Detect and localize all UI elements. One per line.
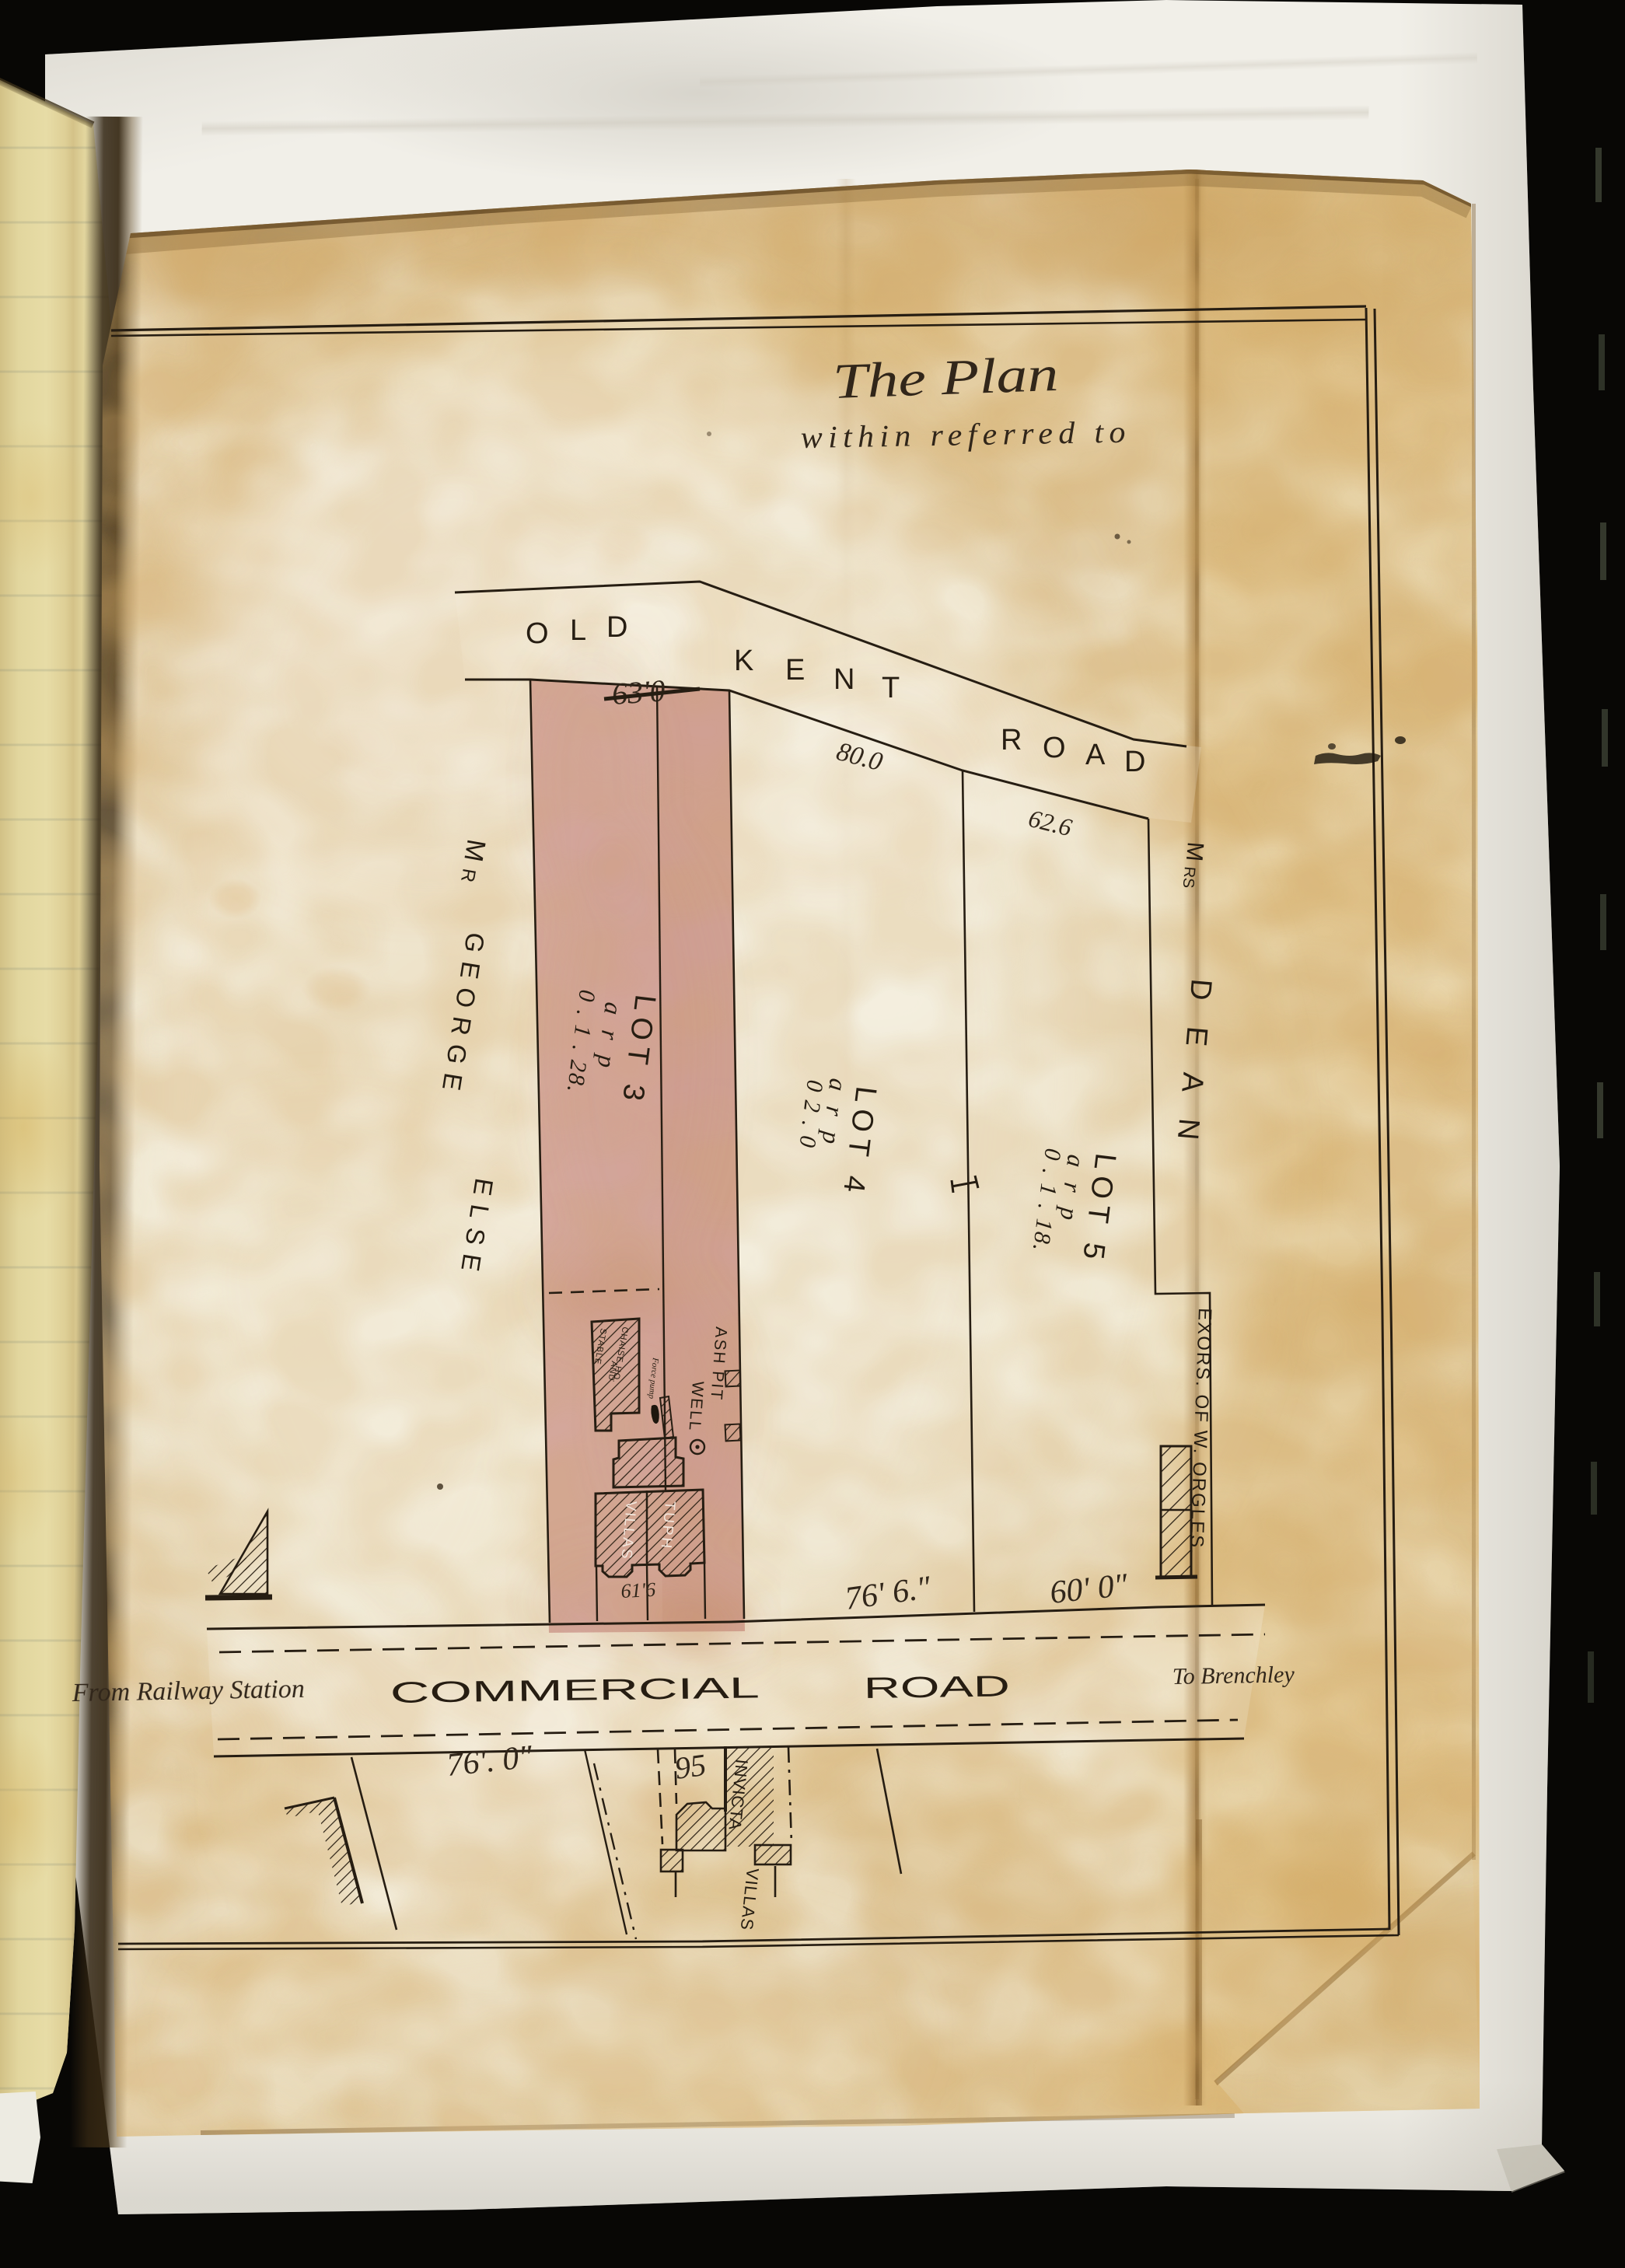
svg-text:A: A (1085, 739, 1106, 771)
svg-text:D: D (606, 611, 627, 644)
svg-text:K: K (734, 645, 753, 677)
svg-text:M: M (1181, 840, 1208, 862)
svg-text:COMMERCIAL: COMMERCIAL (390, 1672, 760, 1710)
svg-text:O: O (526, 617, 549, 650)
svg-text:The Plan: The Plan (832, 346, 1059, 409)
svg-text:R: R (1001, 724, 1022, 757)
svg-text:WELL: WELL (685, 1381, 706, 1433)
svg-text:within referred to: within referred to (800, 414, 1131, 455)
svg-text:E: E (785, 654, 805, 687)
svg-text:N: N (833, 663, 854, 696)
svg-text:ROAD: ROAD (864, 1670, 1011, 1705)
svg-text:T: T (882, 672, 900, 704)
svg-text:L: L (570, 614, 586, 647)
svg-text:61'6: 61'6 (620, 1578, 656, 1602)
svg-text:D: D (1124, 746, 1145, 778)
svg-text:RS: RS (1179, 866, 1198, 889)
svg-text:From Railway Station: From Railway Station (71, 1675, 305, 1707)
svg-text:O: O (1043, 732, 1066, 764)
svg-text:95: 95 (673, 1747, 708, 1786)
svg-text:To Brenchley: To Brenchley (1172, 1662, 1295, 1690)
